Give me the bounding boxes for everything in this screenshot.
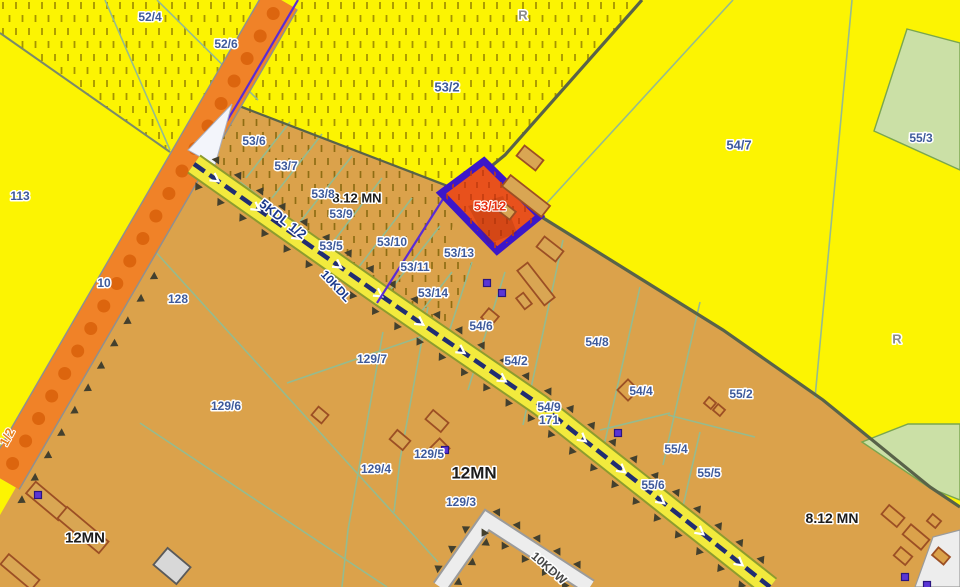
label-10: 10 — [97, 276, 111, 290]
road-dot — [45, 390, 58, 403]
label-53-13: 53/13 — [444, 246, 474, 260]
habitation-symbol — [499, 290, 506, 297]
label-53-5: 53/5 — [319, 239, 343, 253]
label-55-3: 55/3 — [909, 131, 933, 145]
label-8-12-mn: 8.12 MN — [806, 510, 859, 526]
road-dot — [84, 322, 97, 335]
label-52-6: 52/6 — [214, 37, 238, 51]
cadastral-map: 8.12 MN12MN12MN8.12 MNRR5KDL 1/210KDL10K… — [0, 0, 960, 587]
road-dot — [58, 367, 71, 380]
road-dot — [6, 457, 19, 470]
label-54-2: 54/2 — [504, 354, 528, 368]
road-dot — [215, 97, 228, 110]
road-dot — [254, 30, 267, 43]
label-12mn: 12MN — [65, 530, 105, 547]
label-54-8: 54/8 — [585, 335, 609, 349]
road-dot — [97, 300, 110, 313]
habitation-symbol — [615, 430, 622, 437]
habitation-symbol — [35, 492, 42, 499]
label-55-5: 55/5 — [697, 466, 721, 480]
road-dot — [267, 7, 280, 20]
label-54-7: 54/7 — [726, 138, 751, 153]
label-129-5: 129/5 — [414, 447, 444, 461]
label-53-10: 53/10 — [377, 235, 407, 249]
road-dot — [176, 165, 189, 178]
label-52-4: 52/4 — [138, 10, 162, 24]
label-55-2: 55/2 — [729, 387, 753, 401]
label-8-12-mn: 8.12 MN — [332, 191, 381, 206]
label-53-14: 53/14 — [418, 286, 448, 300]
label-113: 113 — [10, 189, 30, 203]
label-53-8: 53/8 — [311, 187, 335, 201]
road-dot — [149, 210, 162, 223]
road-dot — [19, 435, 32, 448]
label-129-7: 129/7 — [357, 352, 387, 366]
label-129-6: 129/6 — [211, 399, 241, 413]
habitation-symbol — [902, 574, 909, 581]
label-55-6: 55/6 — [641, 478, 665, 492]
label-r: R — [518, 8, 528, 23]
habitation-symbol — [484, 280, 491, 287]
label-129-4: 129/4 — [361, 462, 391, 476]
label-53-7: 53/7 — [274, 159, 298, 173]
label-55-4: 55/4 — [664, 442, 688, 456]
label-128: 128 — [168, 292, 188, 306]
label-54-9: 54/9 — [537, 400, 561, 414]
road-dot — [136, 232, 149, 245]
label-53-9: 53/9 — [329, 207, 353, 221]
label-12mn: 12MN — [451, 464, 496, 483]
label-171: 171 — [539, 413, 559, 427]
label-54-6: 54/6 — [469, 319, 493, 333]
label-53-2: 53/2 — [434, 80, 459, 95]
road-dot — [123, 255, 136, 268]
label-54-4: 54/4 — [629, 384, 653, 398]
road-dot — [228, 75, 241, 88]
label-53-11: 53/11 — [400, 260, 430, 274]
road-dot — [241, 52, 254, 65]
label-129-3: 129/3 — [446, 495, 476, 509]
road-dot — [71, 345, 84, 358]
road-dot — [32, 412, 45, 425]
road-dot — [162, 187, 175, 200]
label-53-6: 53/6 — [242, 134, 266, 148]
label-53-12[interactable]: 53/12 — [474, 199, 507, 214]
label-r: R — [892, 332, 902, 347]
road-dot — [110, 277, 123, 290]
habitation-symbol — [924, 582, 931, 587]
